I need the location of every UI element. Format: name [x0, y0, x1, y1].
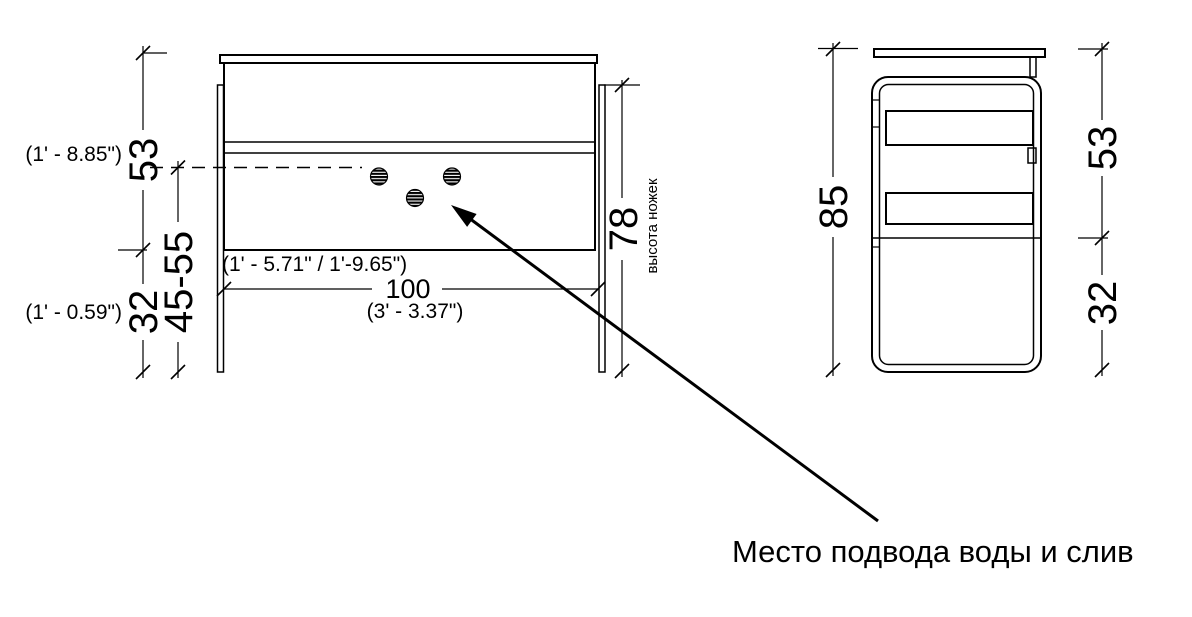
dim-imperial-53-front: (1' - 8.85")	[25, 143, 122, 166]
front-countertop	[220, 55, 597, 63]
blueprint-svg: 53 (1' - 8.85") 32 (1' - 0.59") 45-55 78…	[0, 0, 1192, 617]
water-hole-right	[444, 168, 461, 185]
water-hole-center	[407, 190, 424, 207]
front-view	[150, 55, 605, 372]
water-hole-left	[371, 168, 388, 185]
dim-imperial-shelf-range: (1' - 5.71" / 1'-9.65")	[222, 253, 407, 276]
dim-note-legs-height: высота ножек	[644, 178, 661, 273]
side-rear-upright	[1030, 57, 1036, 77]
side-lower-panel	[886, 193, 1033, 224]
dim-value-78: 78	[602, 207, 646, 252]
dim-imperial-32-front: (1' - 0.59")	[25, 301, 122, 324]
dim-value-32-side: 32	[1081, 281, 1125, 326]
water-holes	[371, 168, 461, 207]
callout-arrowhead-icon	[451, 205, 477, 227]
side-countertop	[874, 49, 1045, 57]
dim-imperial-100: (3' - 3.37")	[367, 300, 464, 323]
water-supply-annotation: Место подвода воды и слив	[451, 205, 1134, 569]
dim-value-53-front: 53	[122, 138, 166, 183]
side-rear-bracket	[1028, 148, 1036, 163]
dim-value-45-55: 45-55	[157, 231, 201, 333]
callout-leader-line	[469, 218, 878, 521]
technical-drawing-canvas: 53 (1' - 8.85") 32 (1' - 0.59") 45-55 78…	[0, 0, 1192, 617]
front-body	[224, 63, 595, 250]
front-view-dimensions: 53 (1' - 8.85") 32 (1' - 0.59") 45-55 78…	[25, 46, 661, 379]
side-view	[872, 49, 1045, 372]
side-view-dimensions: 85 53 32	[812, 42, 1125, 377]
front-left-leg	[218, 85, 224, 372]
dim-value-85: 85	[812, 185, 856, 230]
callout-label: Место подвода воды и слив	[732, 534, 1134, 569]
side-upper-panel	[886, 111, 1033, 145]
dim-value-53-side: 53	[1081, 126, 1125, 171]
